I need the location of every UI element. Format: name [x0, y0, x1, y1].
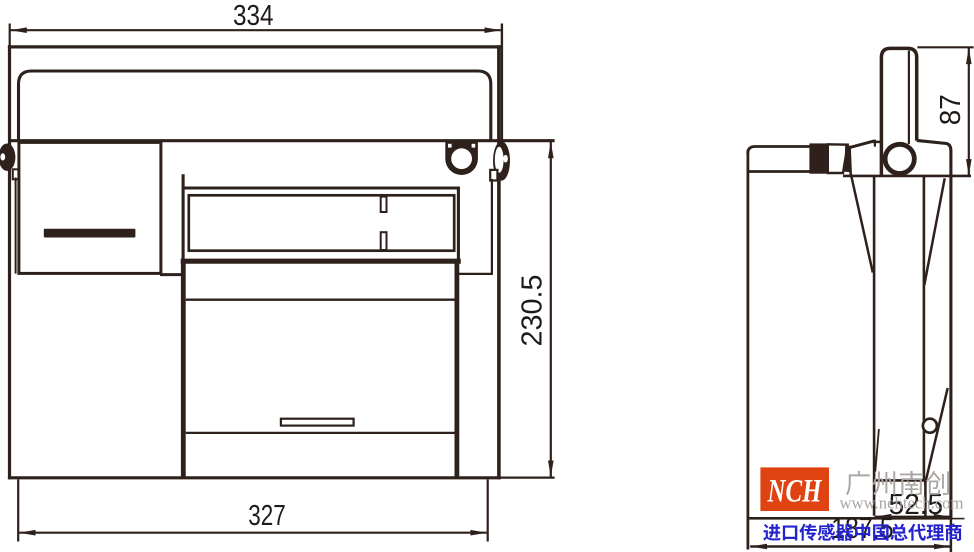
svg-text:87: 87: [935, 94, 967, 125]
svg-text:230.5: 230.5: [517, 275, 549, 347]
svg-text:327: 327: [248, 500, 286, 532]
svg-text:NCH: NCH: [767, 474, 823, 510]
svg-text:www.nchtech.com: www.nchtech.com: [840, 494, 964, 513]
svg-text:334: 334: [233, 0, 274, 32]
